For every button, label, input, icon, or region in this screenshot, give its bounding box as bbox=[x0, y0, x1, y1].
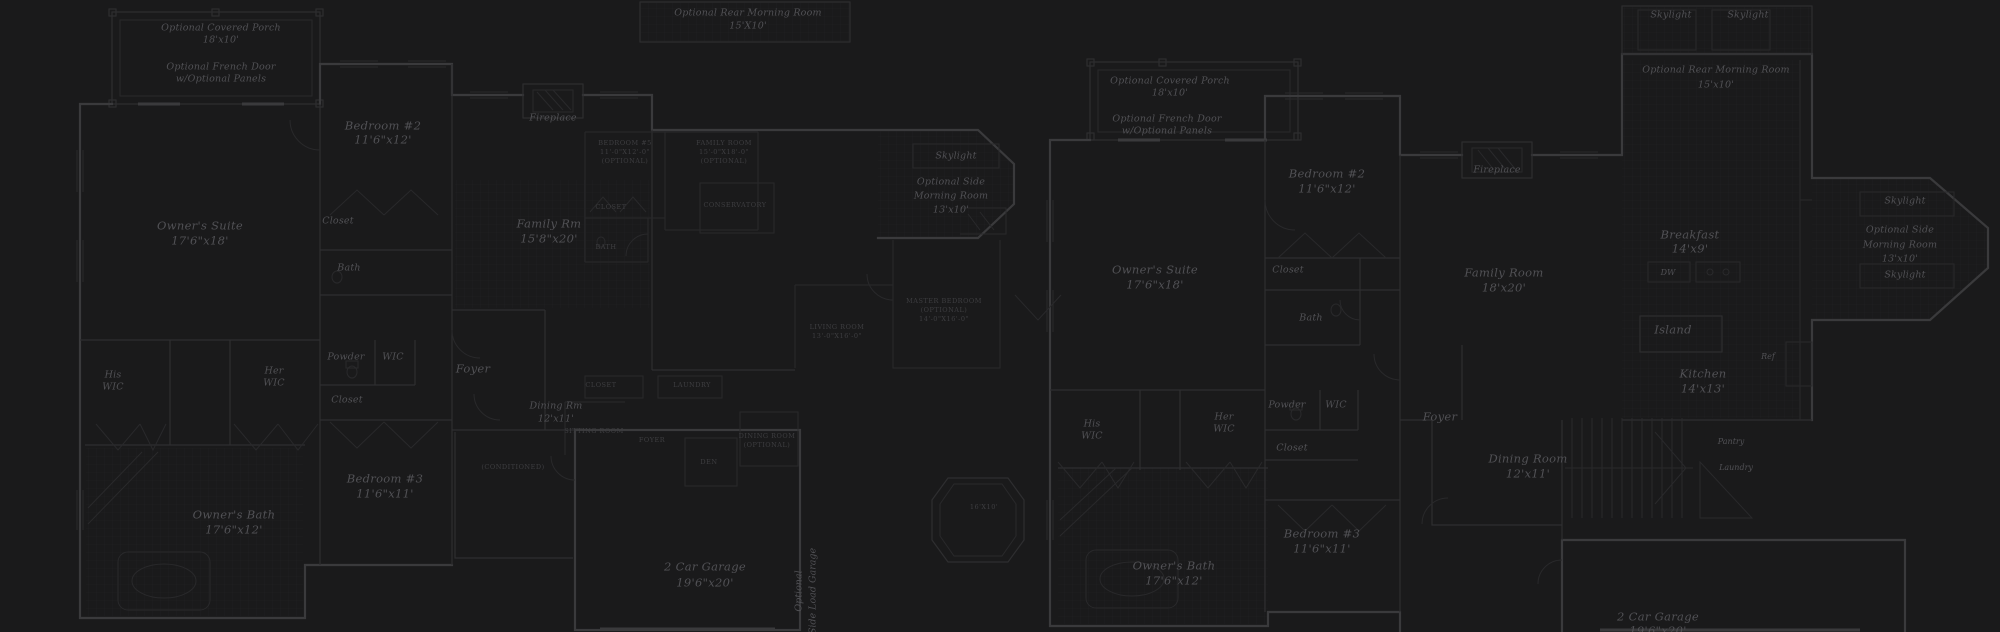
label-left-bed2-closet: Closet bbox=[322, 216, 354, 226]
label-right-owners-bath-size: 17'6"x12' bbox=[1145, 575, 1202, 587]
label-right-hall-closet: Closet bbox=[1276, 443, 1308, 453]
label-left-side-morning-1: Optional Side bbox=[917, 177, 985, 187]
label-left-family-rm: Family Rm bbox=[517, 218, 582, 230]
label-left-french-door-panels: w/Optional Panels bbox=[176, 74, 266, 84]
label-inset-dining: DINING ROOM bbox=[739, 433, 796, 440]
label-right-skylight-rear-1: Skylight bbox=[1650, 10, 1691, 20]
label-right-skylight-bottom: Skylight bbox=[1884, 270, 1925, 280]
label-right-french-door: Optional French Door bbox=[1112, 114, 1221, 124]
label-right-fireplace: Fireplace bbox=[1473, 165, 1520, 175]
label-left-his: His bbox=[105, 370, 122, 380]
label-inset-familyroom-opt: (OPTIONAL) bbox=[701, 158, 748, 165]
label-right-bedroom2-size: 11'6"x12' bbox=[1298, 183, 1355, 195]
right-garage-walls bbox=[1562, 540, 1905, 632]
label-right-bed2-bath: Bath bbox=[1299, 313, 1322, 323]
label-right-foyer: Foyer bbox=[1423, 411, 1458, 423]
label-right-side-morning-size: 13'x10' bbox=[1882, 254, 1918, 264]
label-left-rear-morning: Optional Rear Morning Room bbox=[674, 8, 821, 18]
label-right-garage-size: 19'6"x20' bbox=[1629, 625, 1686, 632]
label-right-french-door-panels: w/Optional Panels bbox=[1122, 126, 1212, 136]
floorplan-linework bbox=[0, 0, 2000, 632]
label-left-side-morning-2: Morning Room bbox=[914, 191, 988, 201]
label-inset-familyroom: FAMILY ROOM bbox=[696, 140, 752, 147]
label-inset-closet-2: CLOSET bbox=[585, 382, 616, 389]
label-inset-master-size: 14'-0"X16'-0" bbox=[919, 316, 969, 323]
tile-areas bbox=[86, 2, 1988, 624]
label-right-skylight-top: Skylight bbox=[1884, 196, 1925, 206]
label-left-foyer: Foyer bbox=[456, 363, 491, 375]
label-left-fireplace: Fireplace bbox=[529, 113, 576, 123]
label-right-porch-size: 18'x10' bbox=[1152, 88, 1188, 98]
label-left-his-wic: WIC bbox=[102, 382, 123, 392]
label-left-family-rm-size: 15'8"x20' bbox=[520, 233, 577, 245]
label-right-dining-size: 12'x11' bbox=[1506, 468, 1550, 480]
label-right-wic: WIC bbox=[1325, 400, 1346, 410]
label-right-ref: Ref bbox=[1761, 353, 1775, 361]
label-inset-turret-size: 16'X10' bbox=[970, 504, 998, 511]
label-right-powder: Powder bbox=[1268, 400, 1305, 410]
label-inset-familyroom-size: 15'-0"X18'-0" bbox=[699, 149, 749, 156]
label-left-hall-closet: Closet bbox=[331, 395, 363, 405]
label-inset-conditioned: (CONDITIONED) bbox=[481, 464, 544, 471]
label-right-porch-title: Optional Covered Porch bbox=[1110, 76, 1230, 86]
label-right-side-morning-1: Optional Side bbox=[1866, 225, 1934, 235]
inset-turret bbox=[932, 478, 1024, 562]
label-left-dining-size: 12'x11' bbox=[538, 414, 574, 424]
label-left-bed2-bath: Bath bbox=[337, 263, 360, 273]
label-right-garage: 2 Car Garage bbox=[1617, 611, 1699, 623]
label-right-bedroom3-size: 11'6"x11' bbox=[1293, 543, 1350, 555]
label-inset-conservatory: CONSERVATORY bbox=[703, 202, 766, 209]
label-right-family-room: Family Room bbox=[1464, 267, 1543, 279]
label-left-bedroom2: Bedroom #2 bbox=[345, 120, 421, 132]
label-left-rear-morning-size: 15'X10' bbox=[729, 21, 767, 31]
label-left-sideload-2: Side Load Garage bbox=[808, 548, 818, 632]
label-inset-living-room-size: 13'-0"X16'-0" bbox=[812, 333, 862, 340]
label-right-bed2-closet: Closet bbox=[1272, 265, 1304, 275]
label-right-bedroom3: Bedroom #3 bbox=[1284, 528, 1360, 540]
label-right-breakfast-size: 14'x9' bbox=[1672, 243, 1709, 255]
label-left-owners-bath: Owner's Bath bbox=[193, 509, 276, 521]
label-right-his-wic: WIC bbox=[1081, 431, 1102, 441]
label-inset-bath: BATH bbox=[595, 244, 616, 251]
label-left-french-door: Optional French Door bbox=[166, 62, 275, 72]
label-right-breakfast: Breakfast bbox=[1661, 229, 1720, 241]
inset-turret-inner bbox=[940, 484, 1016, 556]
label-right-kitchen-size: 14'x13' bbox=[1681, 383, 1725, 395]
label-left-bedroom3: Bedroom #3 bbox=[347, 473, 423, 485]
label-right-rear-morning: Optional Rear Morning Room bbox=[1642, 65, 1789, 75]
label-inset-den: DEN bbox=[700, 459, 717, 466]
floorplan-canvas: Optional Covered Porch18'x10'Optional Fr… bbox=[0, 0, 2000, 632]
label-inset-bedroom5: BEDROOM #5 bbox=[598, 140, 652, 147]
label-left-bedroom3-size: 11'6"x11' bbox=[356, 488, 413, 500]
label-right-bedroom2: Bedroom #2 bbox=[1289, 168, 1365, 180]
label-inset-master-opt: (OPTIONAL) bbox=[921, 307, 968, 314]
label-right-family-room-size: 18'x20' bbox=[1482, 282, 1526, 294]
label-left-dining: Dining Rm bbox=[530, 401, 583, 411]
label-left-porch-title: Optional Covered Porch bbox=[161, 23, 281, 33]
label-right-owners-bath: Owner's Bath bbox=[1133, 560, 1216, 572]
label-right-laundry: Laundry bbox=[1719, 464, 1753, 472]
label-right-kitchen: Kitchen bbox=[1679, 368, 1726, 380]
label-right-her: Her bbox=[1214, 412, 1233, 422]
label-left-her: Her bbox=[264, 366, 283, 376]
label-inset-foyer: FOYER bbox=[639, 437, 665, 444]
label-left-owners-bath-size: 17'6"x12' bbox=[205, 524, 262, 536]
label-left-skylight: Skylight bbox=[935, 151, 976, 161]
label-left-owners-suite: Owner's Suite bbox=[157, 220, 243, 232]
label-left-garage-size: 19'6"x20' bbox=[676, 577, 733, 589]
label-inset-sitting-room: SITTING ROOM bbox=[564, 428, 624, 435]
label-inset-bedroom5-size: 11'-0"X12'-0" bbox=[600, 149, 650, 156]
label-right-pantry: Pantry bbox=[1718, 438, 1745, 446]
label-right-owners-suite: Owner's Suite bbox=[1112, 264, 1198, 276]
label-left-owners-suite-size: 17'6"x18' bbox=[171, 235, 228, 247]
label-right-island: Island bbox=[1654, 324, 1692, 336]
label-right-side-morning-2: Morning Room bbox=[1863, 240, 1937, 250]
label-left-bedroom2-size: 11'6"x12' bbox=[354, 134, 411, 146]
label-inset-laundry: LAUNDRY bbox=[673, 382, 711, 389]
label-left-side-morning-size: 13'x10' bbox=[933, 205, 969, 215]
label-right-dining: Dining Room bbox=[1488, 453, 1567, 465]
label-left-her-wic: WIC bbox=[263, 378, 284, 388]
label-left-powder: Powder bbox=[327, 352, 364, 362]
label-left-porch-size: 18'x10' bbox=[203, 35, 239, 45]
label-right-rear-morning-size: 15'x10' bbox=[1698, 80, 1734, 90]
left-garage-walls bbox=[575, 430, 800, 630]
label-inset-closet-1: CLOSET bbox=[595, 204, 626, 211]
label-left-sideload-1: Optional bbox=[794, 570, 804, 611]
label-inset-master-bedroom: MASTER BEDROOM bbox=[906, 298, 982, 305]
label-right-skylight-rear-2: Skylight bbox=[1727, 10, 1768, 20]
label-inset-living-room: LIVING ROOM bbox=[810, 324, 865, 331]
label-left-garage: 2 Car Garage bbox=[664, 561, 746, 573]
label-inset-bedroom5-opt: (OPTIONAL) bbox=[602, 158, 649, 165]
label-inset-dining-opt: (OPTIONAL) bbox=[744, 442, 791, 449]
label-left-wic: WIC bbox=[382, 352, 403, 362]
label-right-owners-suite-size: 17'6"x18' bbox=[1126, 279, 1183, 291]
label-right-dw: DW bbox=[1661, 269, 1676, 277]
label-right-her-wic: WIC bbox=[1213, 424, 1234, 434]
label-right-his: His bbox=[1084, 419, 1101, 429]
